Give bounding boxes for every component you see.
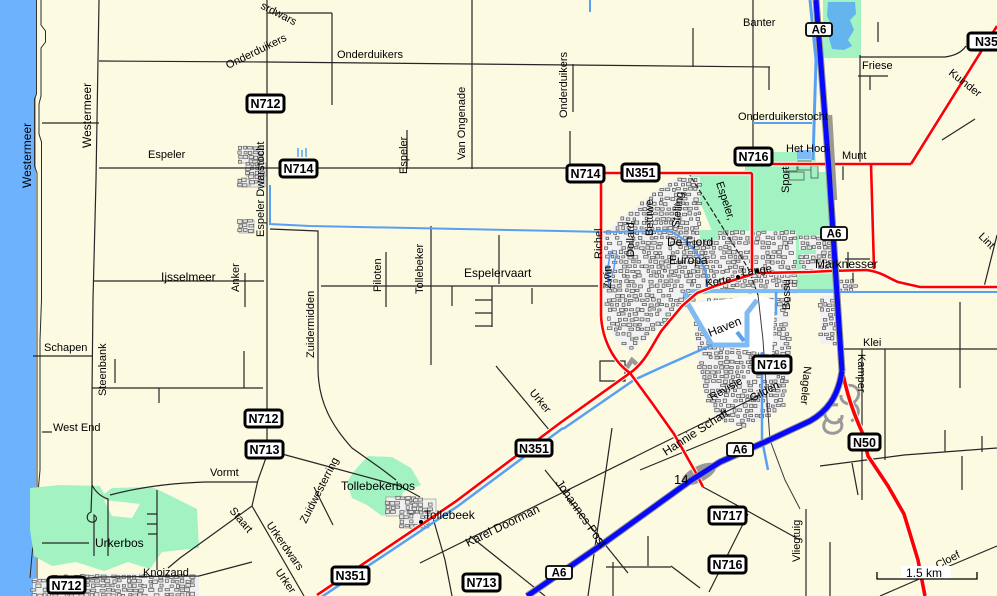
svg-text:N35: N35: [975, 35, 997, 49]
svg-text:N713: N713: [250, 443, 280, 457]
svg-text:N351: N351: [336, 569, 366, 583]
svg-text:Espeler: Espeler: [148, 149, 186, 161]
svg-text:Espeler: Espeler: [398, 136, 410, 174]
svg-text:N712: N712: [251, 97, 281, 111]
svg-text:N714: N714: [284, 162, 314, 176]
svg-text:Europa: Europa: [669, 253, 708, 267]
svg-text:Westermeer: Westermeer: [20, 123, 34, 188]
svg-text:Espeler Dwarstocht: Espeler Dwarstocht: [255, 142, 267, 237]
svg-text:De Fjord: De Fjord: [667, 235, 713, 249]
svg-text:Zuidermidden: Zuidermidden: [305, 291, 317, 358]
svg-text:Knoizand: Knoizand: [143, 567, 189, 579]
svg-text:Friese: Friese: [862, 60, 893, 72]
svg-text:N716: N716: [713, 558, 743, 572]
svg-text:A6: A6: [812, 25, 827, 37]
svg-text:A6: A6: [827, 229, 842, 241]
svg-text:Tollebeek: Tollebeek: [424, 508, 476, 522]
svg-text:Zwin: Zwin: [602, 266, 614, 289]
svg-text:N714: N714: [571, 167, 601, 181]
svg-text:Onderduikers: Onderduikers: [558, 51, 570, 118]
svg-text:Klei: Klei: [863, 337, 881, 349]
svg-text:Banter: Banter: [743, 17, 776, 29]
svg-text:N717: N717: [713, 509, 743, 523]
svg-text:N351: N351: [519, 442, 549, 456]
svg-text:Van Ongenade: Van Ongenade: [456, 87, 468, 160]
svg-text:Bossu: Bossu: [781, 279, 793, 310]
svg-text:Espelervaart: Espelervaart: [464, 266, 532, 280]
svg-text:Kamper: Kamper: [855, 354, 867, 393]
svg-text:Piloten: Piloten: [372, 258, 384, 292]
svg-text:Urkerbos: Urkerbos: [95, 536, 144, 550]
svg-text:N712: N712: [52, 579, 82, 593]
svg-text:Schapen: Schapen: [44, 342, 87, 354]
svg-text:Onderduikers: Onderduikers: [337, 49, 404, 61]
svg-text:N712: N712: [249, 412, 279, 426]
svg-text:Richel: Richel: [593, 228, 605, 259]
svg-text:Tollebekerbos: Tollebekerbos: [341, 479, 415, 493]
svg-text:14: 14: [674, 472, 688, 487]
svg-text:Het Hooi: Het Hooi: [786, 143, 829, 155]
svg-text:Onderduikerstocht: Onderduikerstocht: [738, 111, 828, 123]
svg-text:N713: N713: [467, 576, 497, 590]
svg-text:Tollebeker: Tollebeker: [414, 244, 426, 294]
svg-text:Steenbank: Steenbank: [97, 343, 109, 396]
svg-text:1.5 km: 1.5 km: [906, 566, 942, 580]
svg-text:N716: N716: [757, 358, 787, 372]
svg-text:West End: West End: [53, 422, 101, 434]
svg-text:A6: A6: [552, 568, 567, 580]
svg-text:Anker: Anker: [230, 263, 242, 292]
svg-text:Westermeer: Westermeer: [80, 83, 94, 148]
svg-text:Dollard: Dollard: [625, 222, 637, 257]
svg-text:Betuwe: Betuwe: [644, 199, 656, 236]
svg-text:N50: N50: [853, 436, 876, 450]
svg-text:A6: A6: [733, 445, 748, 457]
svg-text:Vliegtuig: Vliegtuig: [791, 520, 803, 562]
svg-text:Sport: Sport: [780, 167, 792, 193]
svg-text:N716: N716: [739, 150, 769, 164]
svg-text:N351: N351: [626, 166, 656, 180]
svg-text:Ijsselmeer: Ijsselmeer: [161, 270, 216, 284]
svg-text:Munt: Munt: [842, 150, 866, 162]
svg-text:Marknesser: Marknesser: [815, 257, 878, 271]
svg-text:Vormt: Vormt: [210, 467, 239, 479]
